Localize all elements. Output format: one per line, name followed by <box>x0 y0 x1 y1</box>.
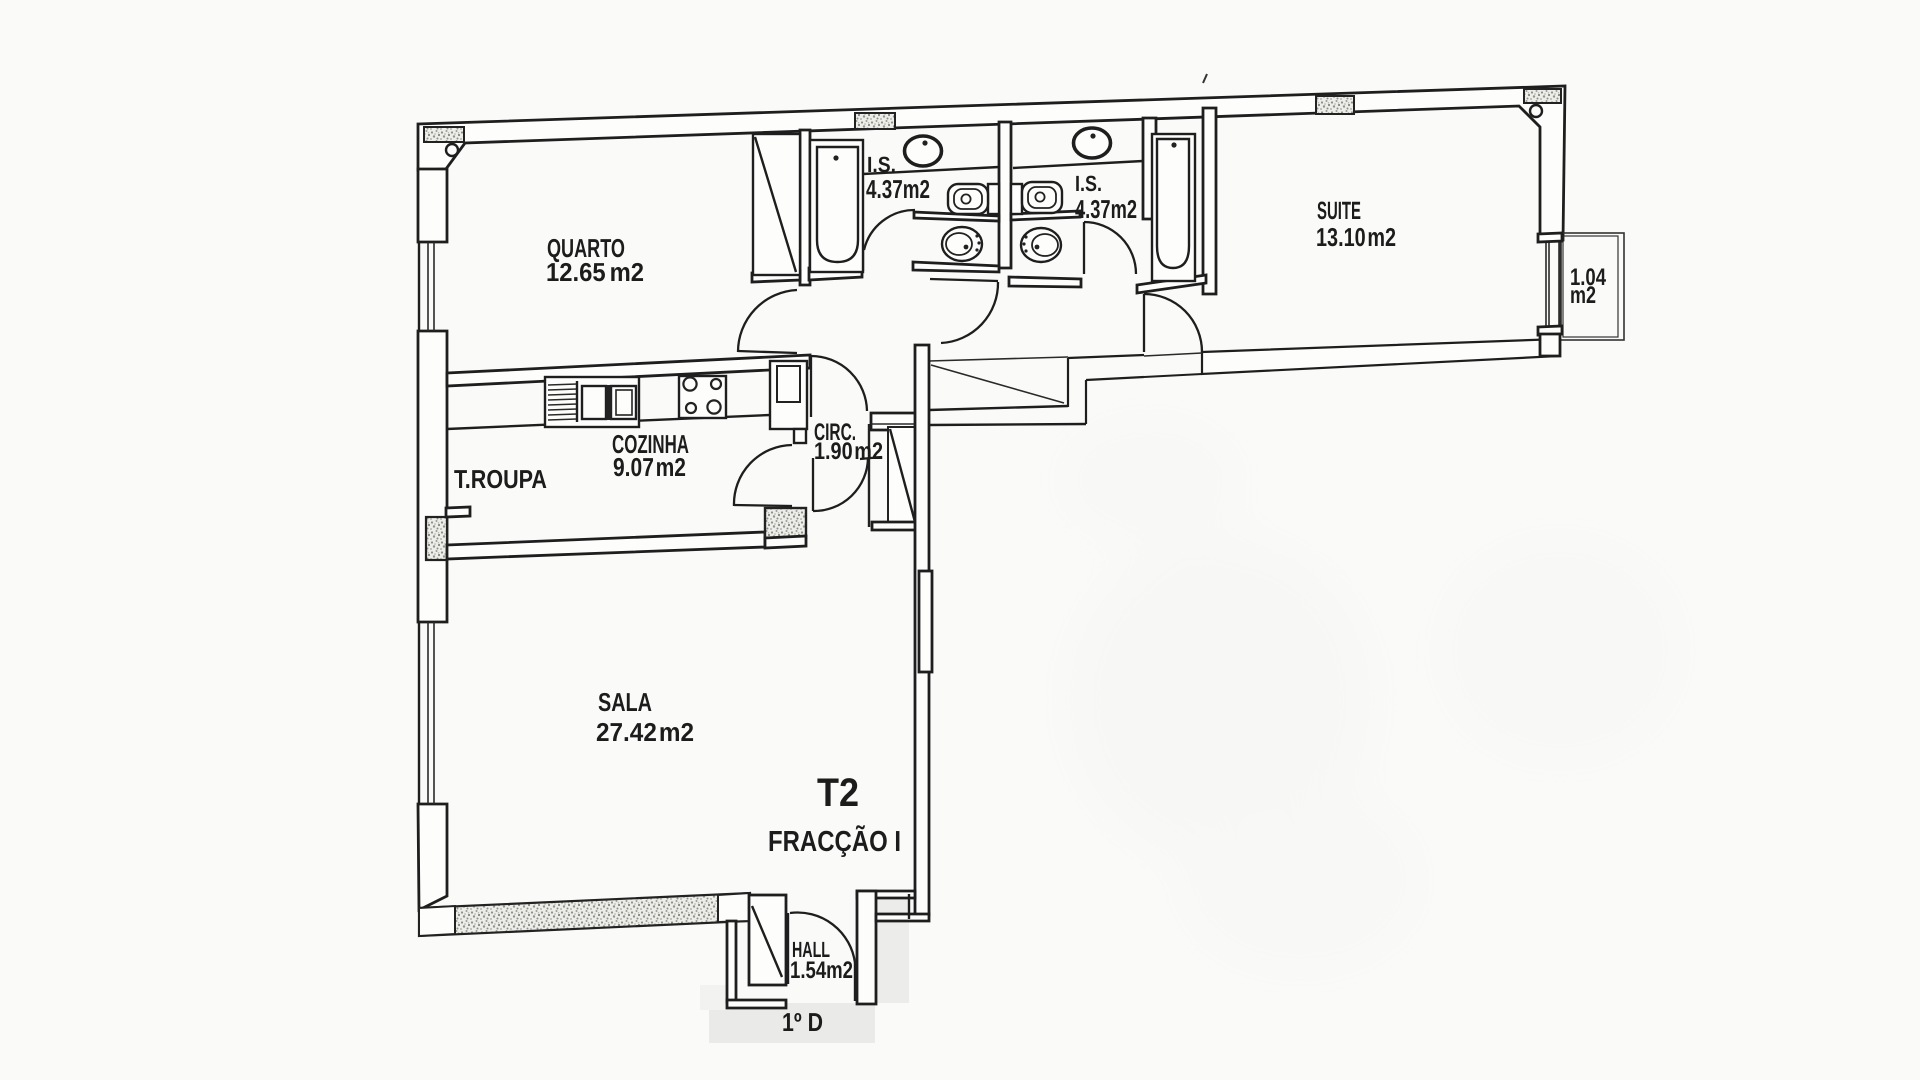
svg-text:FRACÇÃO I: FRACÇÃO I <box>768 825 901 858</box>
svg-text:1º D: 1º D <box>782 1007 823 1037</box>
svg-text:T2: T2 <box>817 771 859 815</box>
svg-text:T.ROUPA: T.ROUPA <box>454 464 547 494</box>
svg-text:1.90 m2: 1.90 m2 <box>814 438 883 465</box>
svg-text:27.42 m2: 27.42 m2 <box>596 717 694 747</box>
svg-text:I.S.: I.S. <box>1075 171 1102 196</box>
svg-text:m2: m2 <box>1570 282 1596 309</box>
svg-text:1.54m2: 1.54m2 <box>790 957 853 984</box>
svg-text:4.37m2: 4.37m2 <box>866 174 930 204</box>
svg-text:9.07 m2: 9.07 m2 <box>613 452 686 482</box>
svg-text:12.65 m2: 12.65 m2 <box>546 257 644 287</box>
svg-text:13.10 m2: 13.10 m2 <box>1316 222 1396 252</box>
svg-text:SUITE: SUITE <box>1317 197 1361 225</box>
svg-text:SALA: SALA <box>598 687 652 717</box>
svg-text:4.37m2: 4.37m2 <box>1075 194 1137 224</box>
